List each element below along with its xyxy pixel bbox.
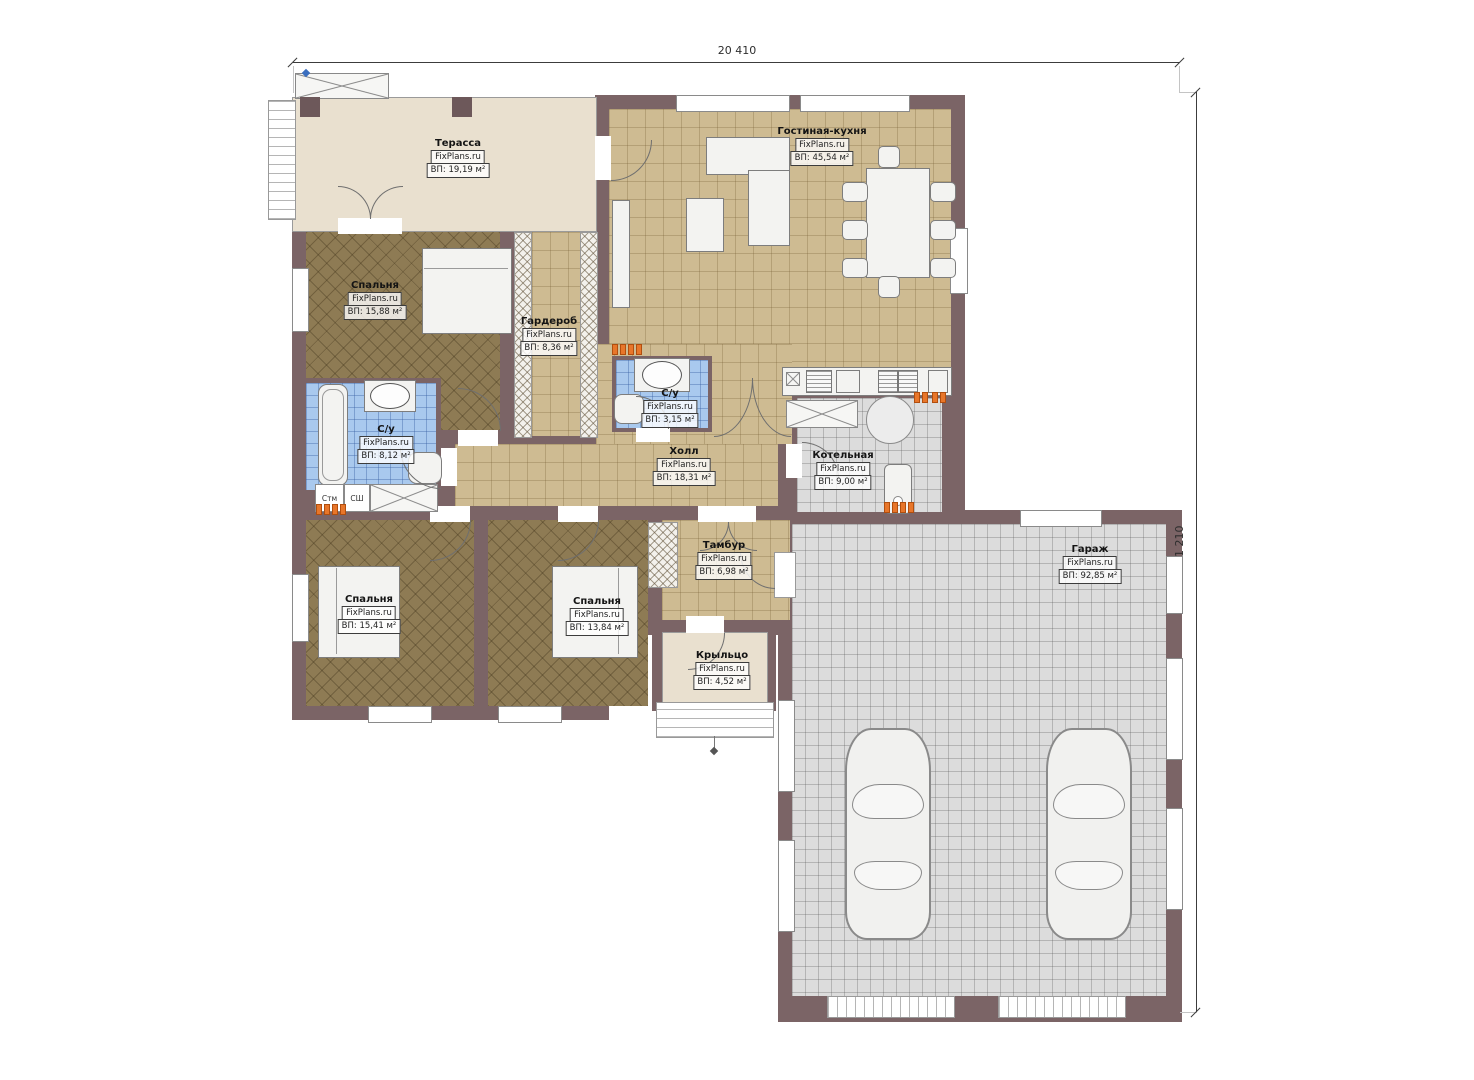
floor-drain-circle [866, 396, 914, 444]
watermark: FixPlans.ru [816, 462, 870, 476]
door-gap-bathroom-large [441, 448, 457, 486]
door-gap-entry [774, 552, 796, 598]
dining-chair [930, 220, 956, 240]
watermark: FixPlans.ru [431, 150, 485, 164]
room-label-boiler: Котельная FixPlans.ru ВП: 9,00 м² [812, 450, 873, 490]
window-living-top-1 [676, 95, 790, 112]
tv-stand [612, 200, 630, 308]
room-area: ВП: 4,52 м² [693, 675, 750, 689]
watermark: FixPlans.ru [348, 292, 402, 306]
terrace-post [300, 97, 320, 117]
wardrobe-shelves [580, 232, 598, 438]
dining-chair [842, 220, 868, 240]
window-garage-left-2 [778, 840, 795, 932]
bed [422, 248, 512, 334]
room-name: Тамбур [703, 540, 745, 551]
room-name: С/у [661, 388, 679, 399]
dining-chair [930, 182, 956, 202]
room-area: ВП: 13,84 м² [566, 621, 629, 635]
room-label-bedroom-2: Спальня FixPlans.ru ВП: 15,41 м² [338, 594, 401, 634]
window-garage-top [1020, 510, 1102, 527]
room-label-wc-small: С/у FixPlans.ru ВП: 3,15 м² [641, 388, 698, 428]
dining-chair [878, 276, 900, 298]
oven [878, 370, 898, 393]
room-label-terrace: Терасса FixPlans.ru ВП: 19,19 м² [427, 138, 490, 178]
dining-table [866, 168, 930, 278]
exit-marker-point [710, 747, 718, 755]
room-label-wc-large: С/у FixPlans.ru ВП: 8,12 м² [357, 424, 414, 464]
room-name: С/у [377, 424, 395, 435]
dining-chair [878, 146, 900, 168]
vent-marker [332, 504, 346, 515]
vent-marker [932, 392, 946, 403]
room-name: Спальня [351, 280, 399, 291]
room-label-hall: Холл FixPlans.ru ВП: 18,31 м² [653, 446, 716, 486]
extension-line [1179, 66, 1180, 93]
window-bedroom2-bottom [368, 706, 432, 723]
watermark: FixPlans.ru [657, 458, 711, 472]
dining-chair [842, 258, 868, 278]
vent-marker [612, 344, 626, 355]
room-label-garage: Гараж FixPlans.ru ВП: 92,85 м² [1059, 544, 1122, 584]
room-area: ВП: 9,00 м² [814, 475, 871, 489]
vent-marker [884, 502, 898, 513]
dining-chair [842, 182, 868, 202]
room-name: Спальня [573, 596, 621, 607]
stove [806, 370, 832, 393]
room-area: ВП: 18,31 м² [653, 471, 716, 485]
room-area: ВП: 45,54 м² [791, 151, 854, 165]
window-bedroom3-bottom [498, 706, 562, 723]
car-rear-window [854, 861, 923, 890]
dimension-line-top [293, 62, 1180, 63]
room-label-tambour: Тамбур FixPlans.ru ВП: 6,98 м² [695, 540, 752, 580]
door-gap-bathroom-small [636, 428, 670, 442]
floor-hall [455, 444, 778, 506]
room-label-bedroom-3: Спальня FixPlans.ru ВП: 13,84 м² [566, 596, 629, 636]
window-garage-left-1 [778, 700, 795, 792]
vent-marker [900, 502, 914, 513]
coffee-table [686, 198, 724, 252]
room-area: ВП: 8,12 м² [357, 449, 414, 463]
boiler-closet [786, 400, 858, 428]
bathtub-inner [322, 389, 344, 481]
room-area: ВП: 92,85 м² [1059, 569, 1122, 583]
window-bedroom1-left [292, 268, 309, 332]
vent-marker [316, 504, 330, 515]
garage-door-1 [827, 996, 955, 1018]
garage-door-2 [998, 996, 1126, 1018]
car [845, 728, 931, 940]
dishwasher [898, 370, 918, 393]
room-name: Гостиная-кухня [777, 126, 866, 137]
vent-marker [628, 344, 642, 355]
sofa-vertical [748, 170, 790, 246]
room-name: Гараж [1072, 544, 1109, 555]
sink-bowl [642, 361, 682, 389]
room-name: Терасса [435, 138, 481, 149]
door-gap-tambour [698, 506, 756, 522]
watermark: FixPlans.ru [695, 662, 749, 676]
window-bedroom2-left [292, 574, 309, 642]
closet-shelves [648, 522, 678, 588]
watermark: FixPlans.ru [643, 400, 697, 414]
room-area: ВП: 3,15 м² [641, 413, 698, 427]
bed-pillow-line [424, 268, 508, 269]
car-rear-window [1055, 861, 1124, 890]
linen-closet [370, 484, 438, 512]
window-garage-right-2 [1166, 658, 1183, 760]
dimension-label-top: 20 410 [700, 44, 774, 57]
room-area: ВП: 6,98 м² [695, 565, 752, 579]
watermark: FixPlans.ru [570, 608, 624, 622]
fridge [928, 370, 948, 393]
terrace-side-steps [268, 100, 296, 220]
door-gap-porch [686, 616, 724, 633]
dining-chair [930, 258, 956, 278]
car-windshield [1053, 784, 1125, 819]
terrace-ramp [295, 73, 389, 99]
door-gap-terrace-living [595, 136, 611, 180]
window-garage-right-3 [1166, 808, 1183, 910]
watermark: FixPlans.ru [795, 138, 849, 152]
porch-steps [656, 702, 774, 738]
room-name: Холл [669, 446, 698, 457]
watermark: FixPlans.ru [359, 436, 413, 450]
room-name: Крыльцо [696, 650, 748, 661]
room-name: Спальня [345, 594, 393, 605]
room-area: ВП: 19,19 м² [427, 163, 490, 177]
door-gap-bedroom1 [458, 430, 498, 446]
room-label-porch: Крыльцо FixPlans.ru ВП: 4,52 м² [693, 650, 750, 690]
room-area: ВП: 15,88 м² [344, 305, 407, 319]
car [1046, 728, 1132, 940]
room-name: Гардероб [521, 316, 577, 327]
dimension-line-right [1196, 92, 1197, 1012]
terrace-post [452, 97, 472, 117]
drying-cabinet: СШ [344, 484, 370, 512]
room-label-bedroom-1: Спальня FixPlans.ru ВП: 15,88 м² [344, 280, 407, 320]
watermark: FixPlans.ru [522, 328, 576, 342]
window-garage-right-1 [1166, 556, 1183, 614]
room-area: ВП: 8,36 м² [520, 341, 577, 355]
watermark: FixPlans.ru [342, 606, 396, 620]
watermark: FixPlans.ru [1063, 556, 1117, 570]
watermark: FixPlans.ru [697, 552, 751, 566]
vent-marker [914, 392, 928, 403]
sink-bowl [370, 383, 410, 409]
door-gap-boiler [786, 444, 802, 478]
floor-plan-canvas: 20 410 21 210 [0, 0, 1474, 1080]
window-living-top-2 [800, 95, 910, 112]
door-gap-terrace [338, 218, 402, 234]
car-windshield [852, 784, 924, 819]
kitchen-sink [836, 370, 860, 393]
room-area: ВП: 15,41 м² [338, 619, 401, 633]
extension-line [293, 66, 294, 93]
room-label-living-kitchen: Гостиная-кухня FixPlans.ru ВП: 45,54 м² [777, 126, 866, 166]
room-label-wardrobe: Гардероб FixPlans.ru ВП: 8,36 м² [520, 316, 577, 356]
room-name: Котельная [812, 450, 873, 461]
